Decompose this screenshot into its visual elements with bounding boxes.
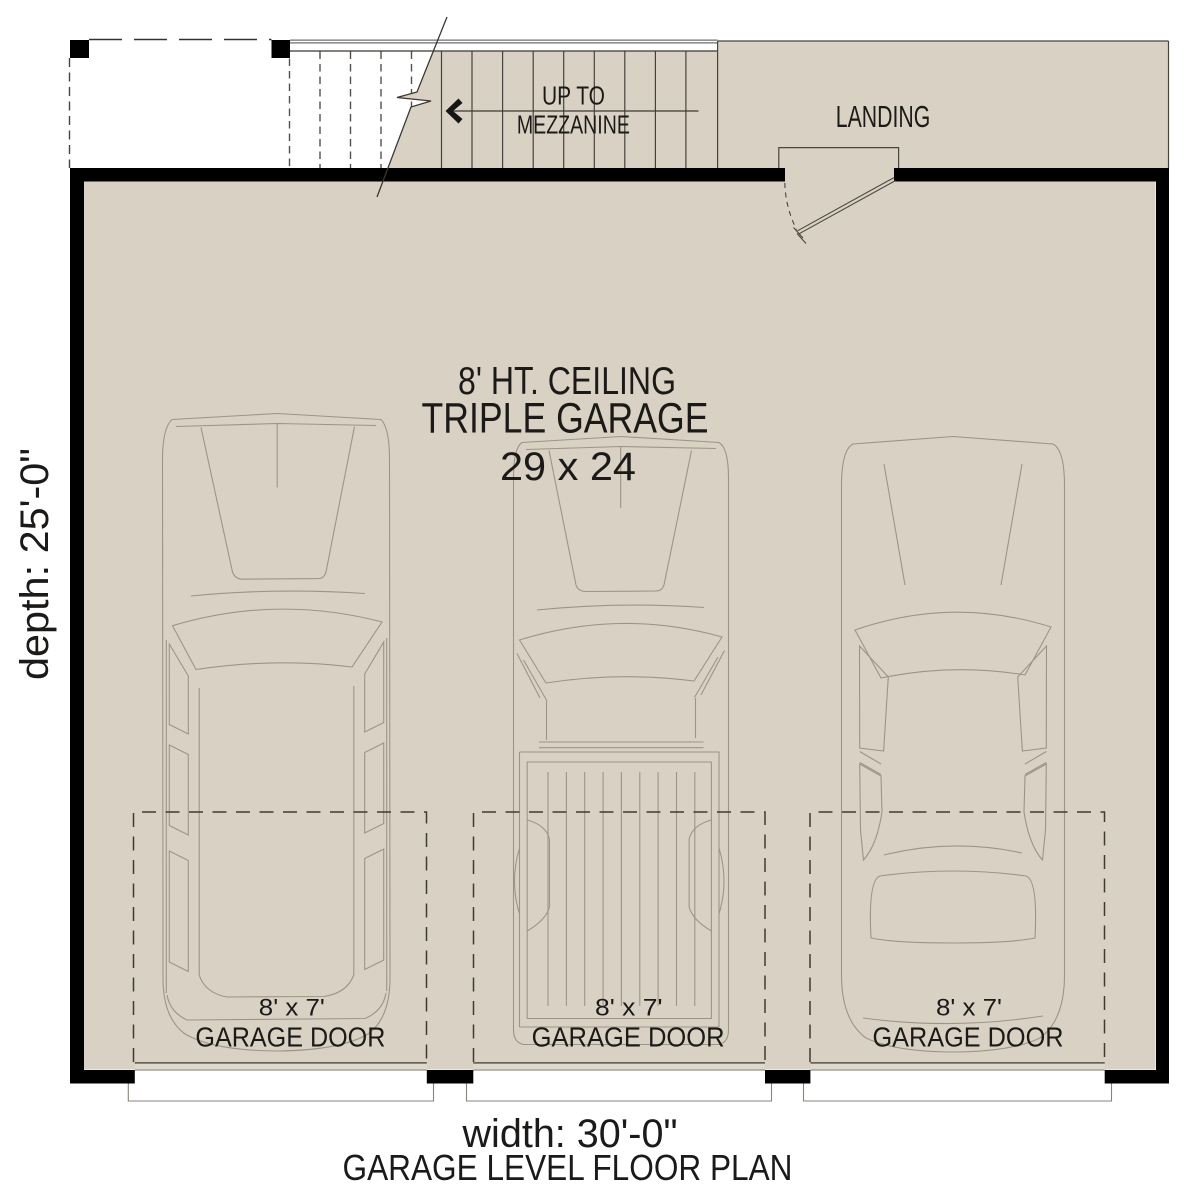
- svg-text:GARAGE LEVEL FLOOR PLAN: GARAGE LEVEL FLOOR PLAN: [343, 1147, 793, 1188]
- svg-text:8' x 7': 8' x 7': [259, 995, 325, 1022]
- svg-text:GARAGE DOOR: GARAGE DOOR: [195, 1022, 385, 1053]
- svg-text:MEZZANINE: MEZZANINE: [517, 110, 630, 140]
- svg-text:UP TO: UP TO: [542, 81, 605, 111]
- svg-text:8' x 7': 8' x 7': [936, 995, 1002, 1022]
- svg-text:LANDING: LANDING: [836, 99, 931, 134]
- svg-text:TRIPLE GARAGE: TRIPLE GARAGE: [422, 395, 709, 443]
- svg-text:8' x 7': 8' x 7': [595, 995, 663, 1022]
- svg-text:GARAGE DOOR: GARAGE DOOR: [532, 1022, 725, 1053]
- svg-text:GARAGE DOOR: GARAGE DOOR: [873, 1022, 1064, 1053]
- svg-text:depth: 25'-0": depth: 25'-0": [13, 448, 57, 680]
- svg-text:29 x 24: 29 x 24: [500, 445, 636, 489]
